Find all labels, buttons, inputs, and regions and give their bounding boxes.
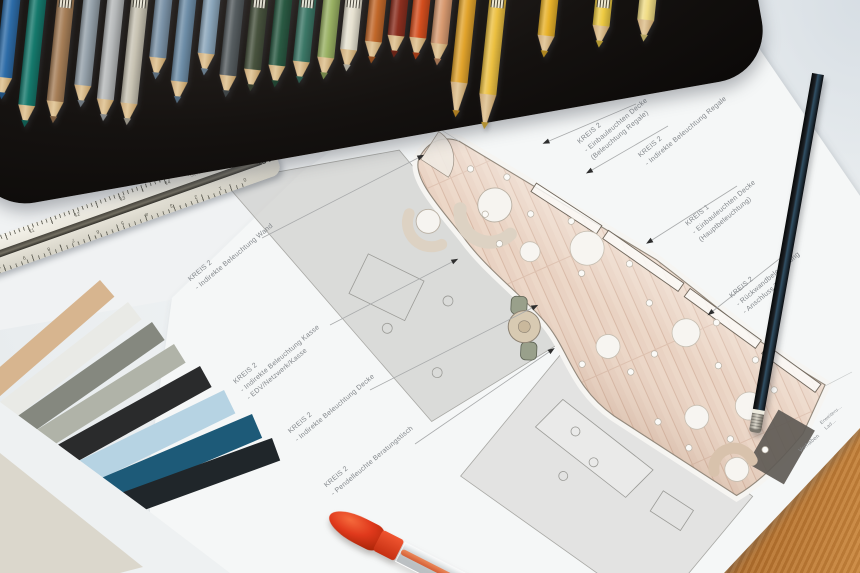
pencil-core-tip xyxy=(48,116,58,124)
pencil-core-tip xyxy=(451,110,461,118)
pencil-core-tip xyxy=(432,58,442,66)
pencil-core-tip xyxy=(20,120,30,128)
pencil-core-tip xyxy=(342,64,352,72)
pencil-core-tip xyxy=(221,90,231,98)
pencil-core-tip xyxy=(246,84,256,92)
pencil-barcode-sticker xyxy=(58,0,74,8)
pencil-core-tip xyxy=(99,114,109,122)
ruler-number: 13 xyxy=(119,195,126,203)
pencil-barcode-sticker xyxy=(132,0,148,8)
pencil-core-tip xyxy=(367,56,377,64)
pencil-barcode-sticker xyxy=(300,0,316,8)
ruler-number: 12 xyxy=(74,211,81,219)
pencil-core-tip xyxy=(594,40,604,48)
pencil-core-tip xyxy=(172,96,182,104)
ruler-number: 14 xyxy=(164,179,171,187)
photo-desk-scene: KREIS 2- Indirekte Beleuchtung Wand KREI… xyxy=(0,0,860,573)
pencil-barcode-sticker xyxy=(252,0,268,8)
pencil-core-tip xyxy=(76,100,86,108)
pencil-core-tip xyxy=(122,118,132,126)
pencil-barcode-sticker xyxy=(346,0,362,8)
pencil-core-tip xyxy=(0,92,7,100)
pencil-core-tip xyxy=(639,34,649,42)
pencil-wood-tip xyxy=(476,93,496,125)
pencil-core-tip xyxy=(539,50,549,58)
pencil-wood-tip xyxy=(448,82,468,114)
pencil-core-tip xyxy=(151,72,161,80)
pencil-barcode-sticker xyxy=(490,0,506,8)
pencil-core-tip xyxy=(270,80,280,88)
pencil-core-tip xyxy=(480,122,490,130)
pencil-core-tip xyxy=(389,50,399,58)
pencil-core-tip xyxy=(319,72,329,80)
pencil-core-tip xyxy=(295,76,305,84)
ruler-number: 0 xyxy=(243,176,248,183)
pencil-core-tip xyxy=(411,52,421,60)
pencil-core-tip xyxy=(199,68,209,76)
pencil-barcode-sticker xyxy=(596,0,612,8)
